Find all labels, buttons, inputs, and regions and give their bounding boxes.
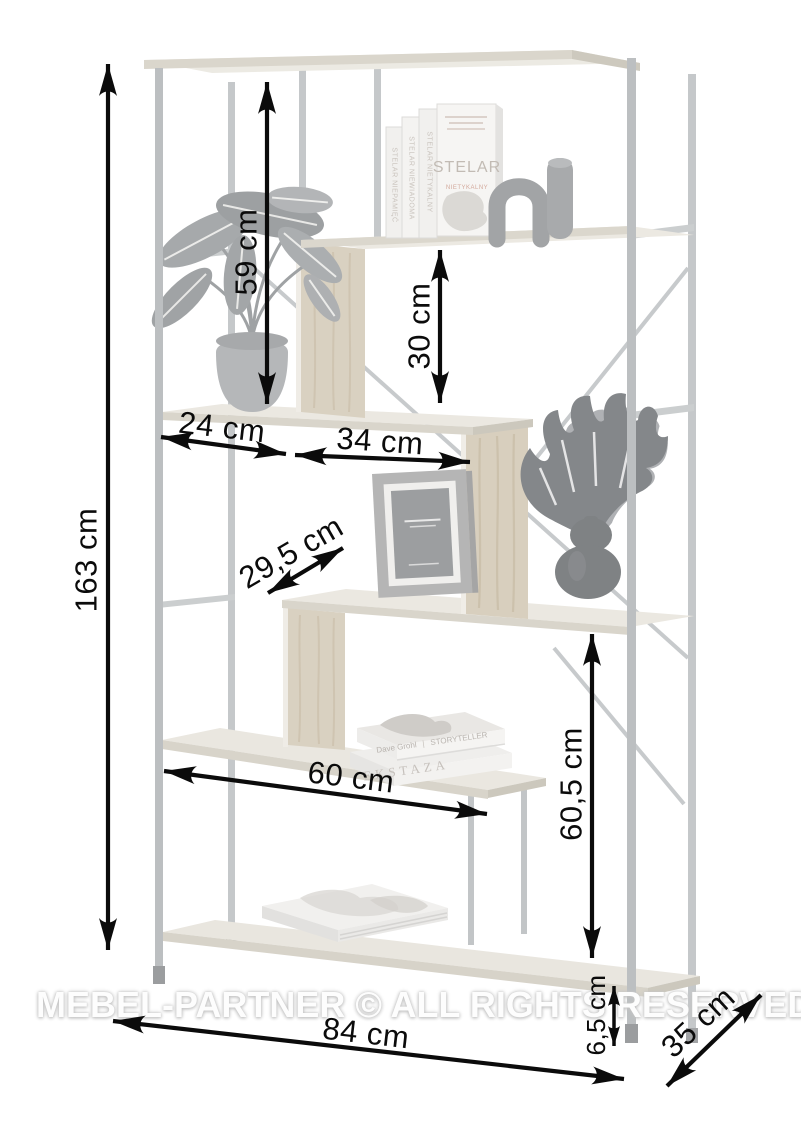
- arrow-middle-compartment-width: [295, 455, 470, 462]
- arrow-left-compartment-width: [161, 437, 286, 454]
- arrow-lower-shelf-width: [164, 771, 487, 814]
- arrow-total-depth: [667, 995, 761, 1086]
- dimension-arrows: [0, 0, 801, 1139]
- arrow-total-width: [113, 1021, 624, 1079]
- furniture-dimension-diagram: STELAR NIEPAMIĘĆ STELAR NIEWIADOMA STELA…: [0, 0, 801, 1139]
- arrow-shelf-depth-diagonal: [268, 548, 343, 593]
